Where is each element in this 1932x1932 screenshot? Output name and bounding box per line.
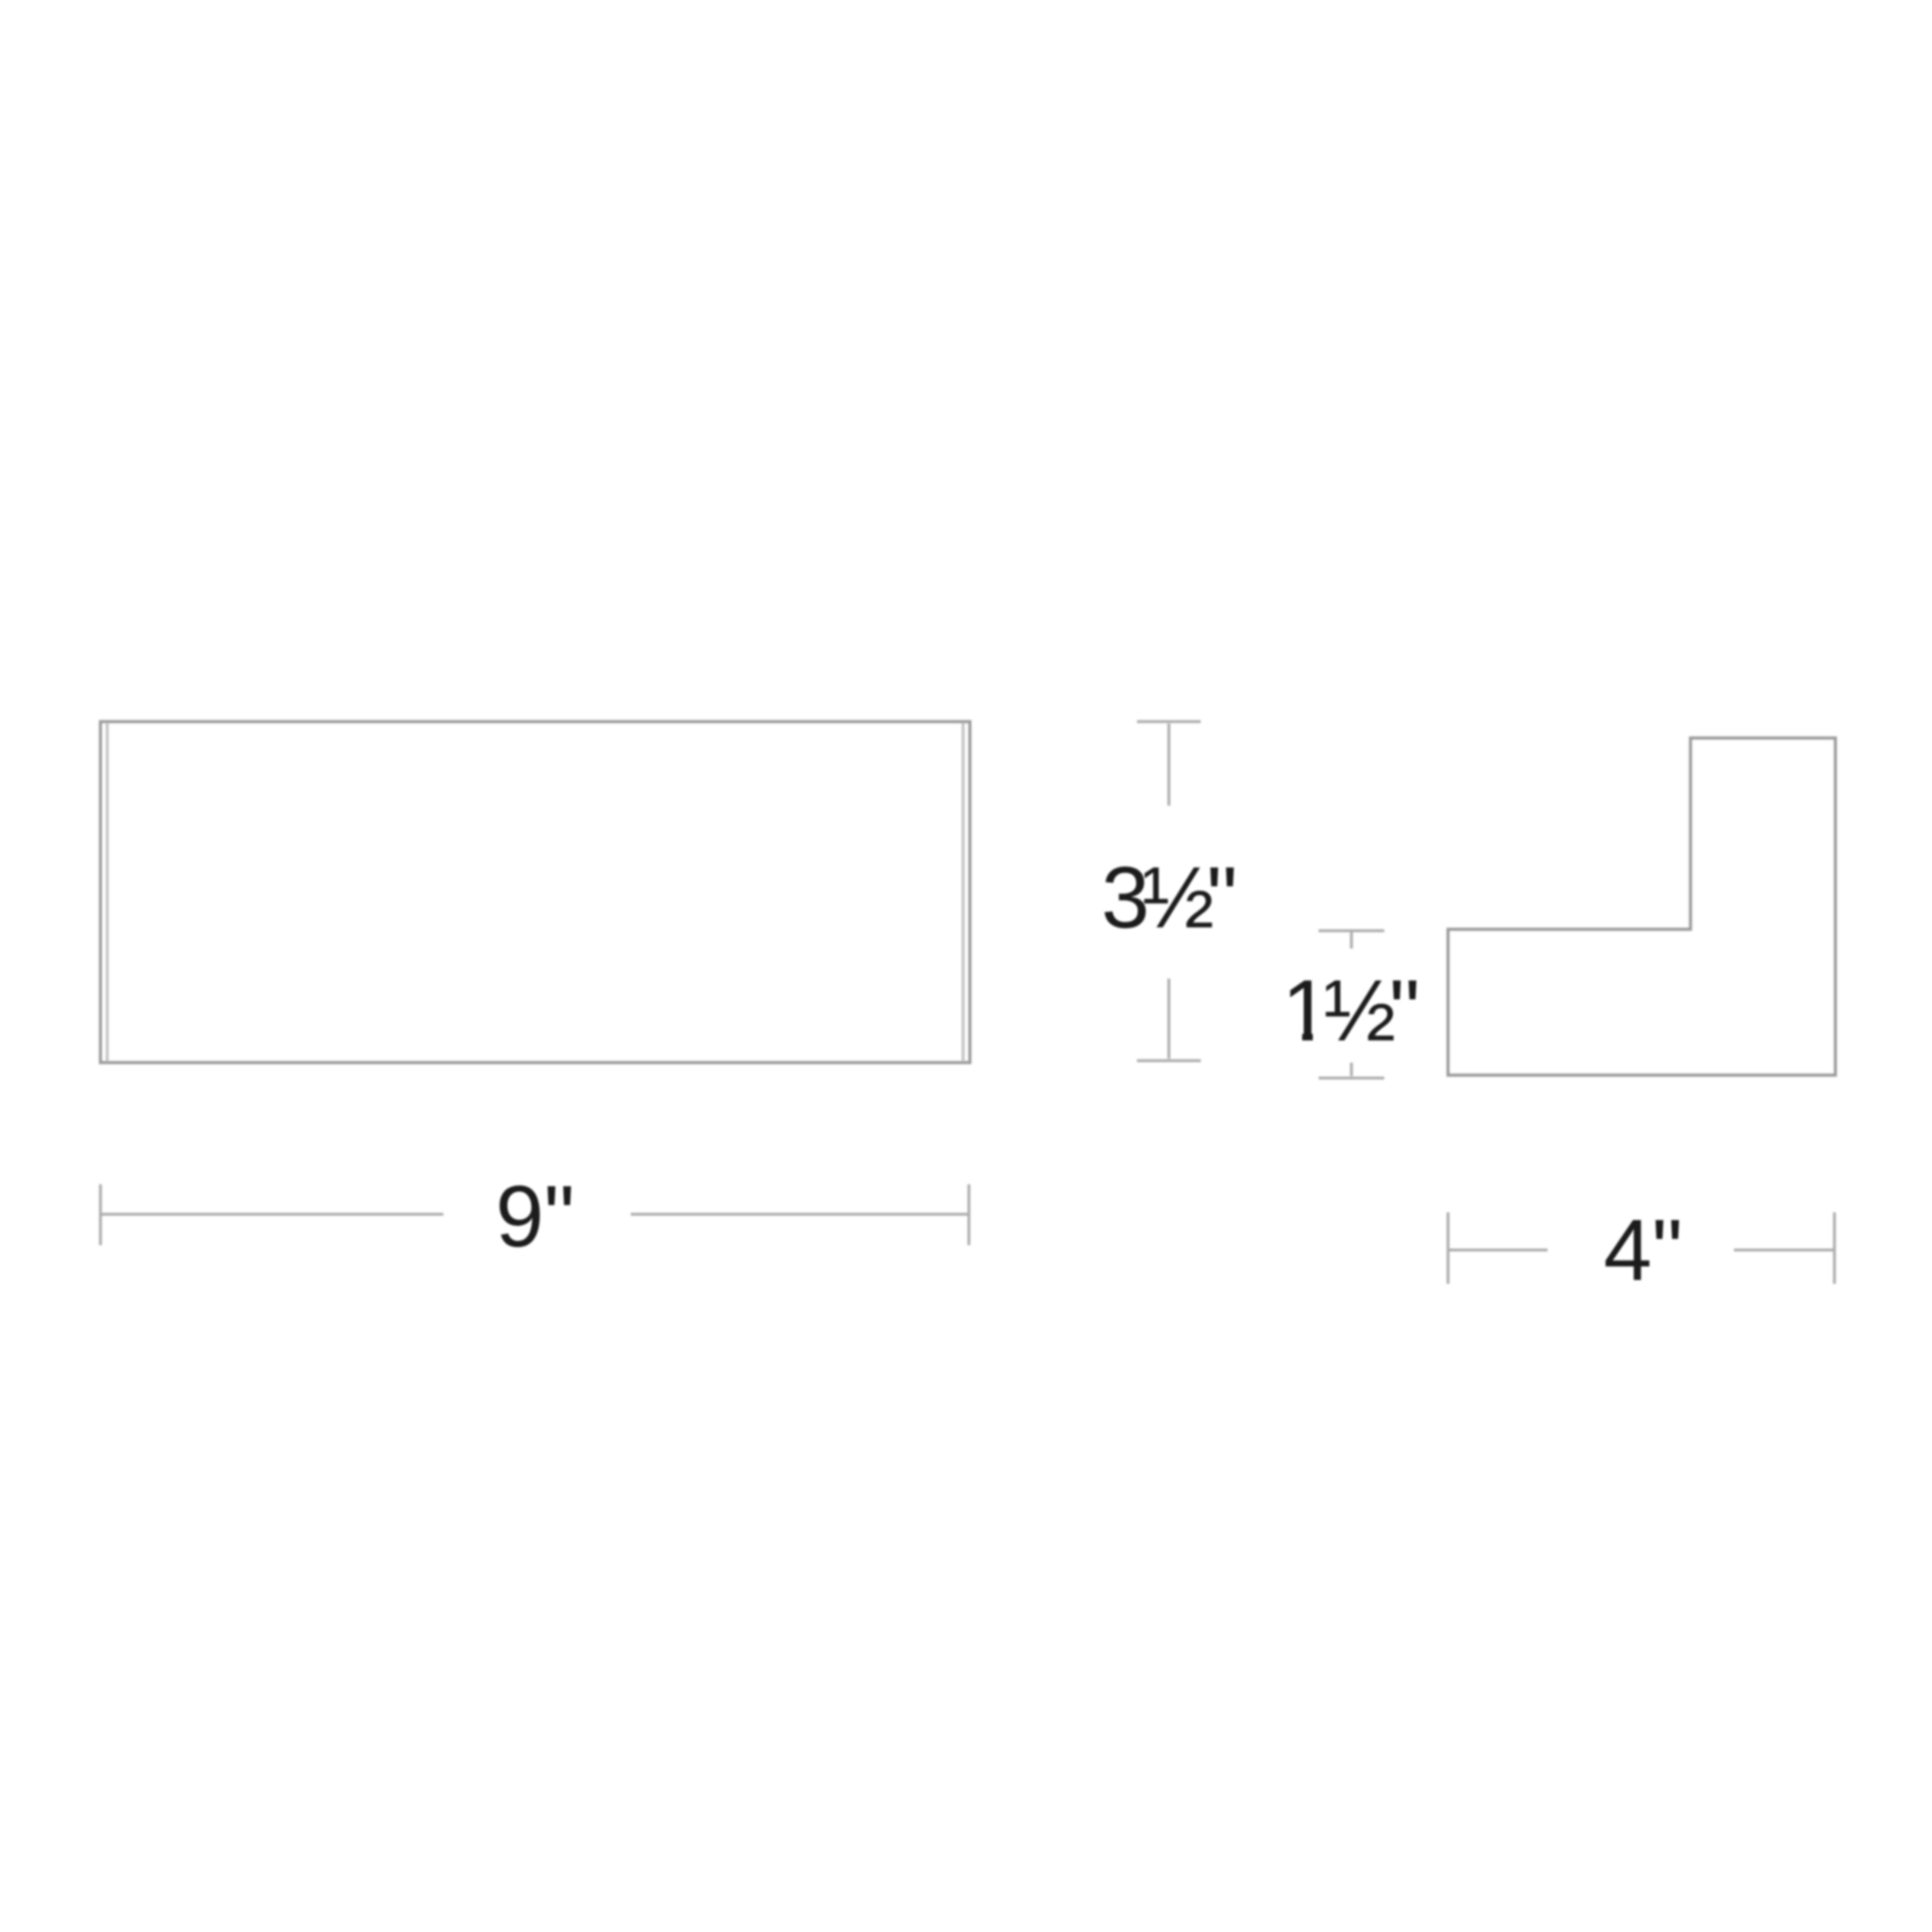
svg-text:4": 4" — [1604, 1203, 1683, 1299]
svg-text:9": 9" — [496, 1169, 575, 1265]
svg-text:3½": 3½" — [1101, 850, 1235, 947]
svg-text:1½": 1½" — [1282, 963, 1417, 1060]
